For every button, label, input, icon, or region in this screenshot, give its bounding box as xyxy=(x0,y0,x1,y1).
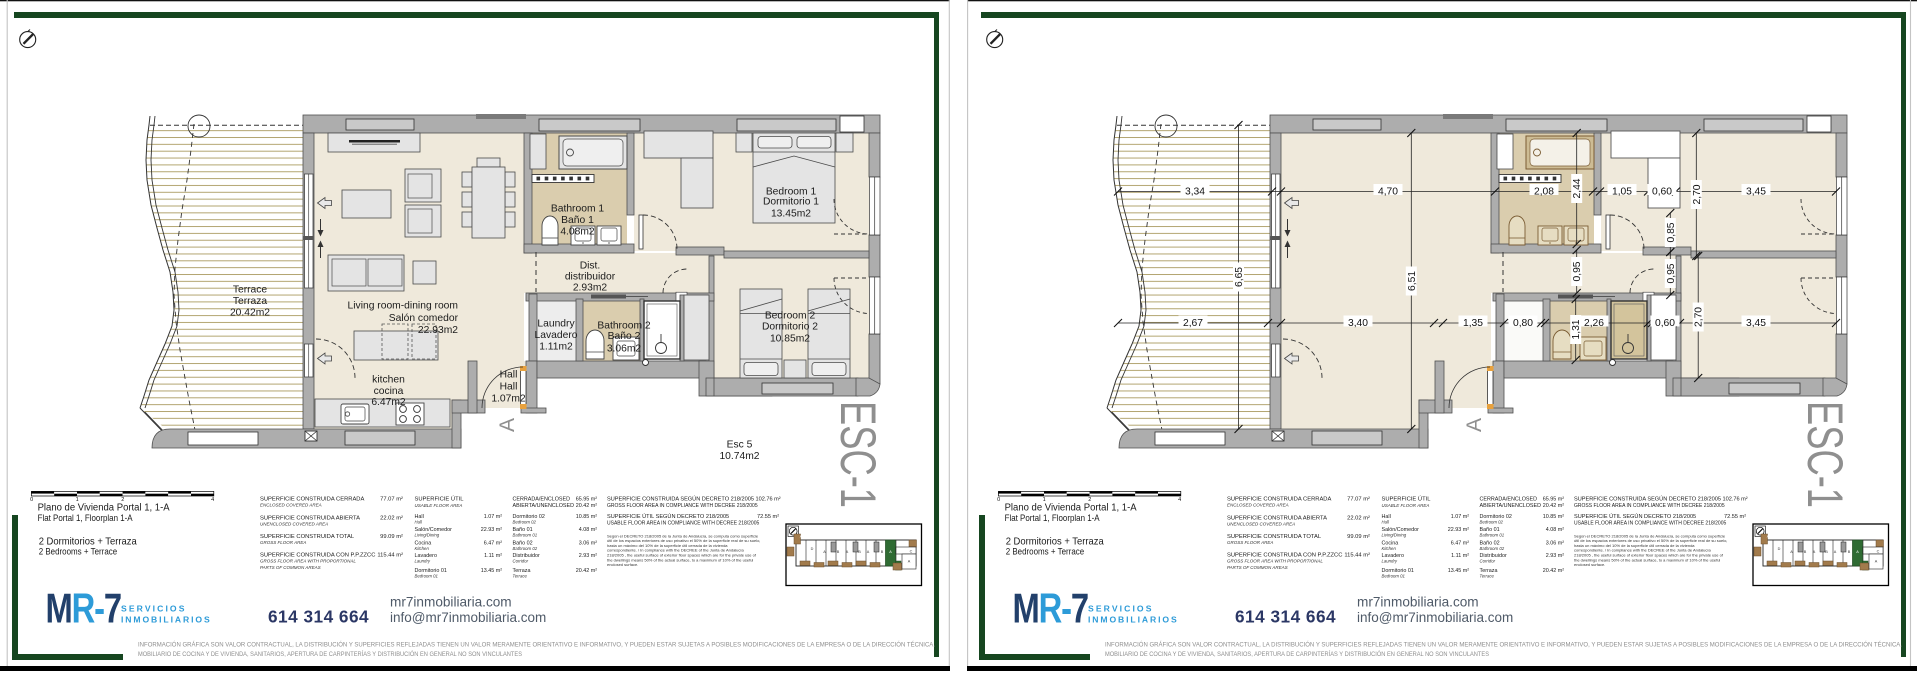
svg-text:Dist.: Dist. xyxy=(580,261,601,272)
svg-text:Bathroom 02: Bathroom 02 xyxy=(513,546,538,551)
svg-text:MOBILIARIO DE COCINA Y DE VIVI: MOBILIARIO DE COCINA Y DE VIVIENDA, SANI… xyxy=(1105,649,1490,658)
svg-text:0,95: 0,95 xyxy=(1572,261,1583,281)
svg-text:4: 4 xyxy=(211,497,214,503)
svg-text:SUPERFICIE ÚTIL SEGÚN DECRETO: SUPERFICIE ÚTIL SEGÚN DECRETO 218/2005 xyxy=(607,513,729,520)
svg-text:72.55 m²: 72.55 m² xyxy=(757,514,779,520)
svg-text:GROSS FLOOR AREA WITH PROPORTI: GROSS FLOOR AREA WITH PROPORTIONAL xyxy=(260,559,356,564)
svg-text:B: B xyxy=(1848,550,1851,554)
svg-text:1.07m2: 1.07m2 xyxy=(491,394,526,405)
svg-text:Terraza: Terraza xyxy=(233,296,268,307)
svg-text:SUPERFICIE CONSTRUIDA CERRADA: SUPERFICIE CONSTRUIDA CERRADA xyxy=(260,496,364,502)
svg-text:enclosed surface.: enclosed surface. xyxy=(607,562,638,567)
svg-text:MOBILIARIO DE COCINA Y DE VIVI: MOBILIARIO DE COCINA Y DE VIVIENDA, SANI… xyxy=(138,649,523,658)
svg-text:INFORMACIÓN GRÁFICA SON VALOR: INFORMACIÓN GRÁFICA SON VALOR CONTRACTUA… xyxy=(138,640,935,649)
svg-text:22.02 m²: 22.02 m² xyxy=(1347,515,1370,521)
svg-text:2.93 m²: 2.93 m² xyxy=(1546,553,1564,559)
svg-text:D: D xyxy=(811,547,814,551)
svg-text:6.47 m²: 6.47 m² xyxy=(484,540,502,546)
svg-text:A: A xyxy=(867,550,870,554)
svg-text:GROSS FLOOR AREA WITH PROPORTI: GROSS FLOOR AREA WITH PROPORTIONAL xyxy=(1227,559,1323,564)
svg-text:0,95: 0,95 xyxy=(1666,263,1677,283)
svg-text:Dormitorio 2: Dormitorio 2 xyxy=(762,322,818,333)
svg-text:Hall: Hall xyxy=(415,519,423,524)
svg-text:SERVICIOS: SERVICIOS xyxy=(1088,604,1154,614)
svg-text:GROSS FLOOR AREA IN COMPLIANCE: GROSS FLOOR AREA IN COMPLIANCE WITH DECR… xyxy=(1574,503,1725,509)
svg-text:B: B xyxy=(1804,550,1807,554)
svg-text:1.11 m²: 1.11 m² xyxy=(484,553,502,559)
svg-text:SUPERFICIE CONSTRUIDA TOTAL: SUPERFICIE CONSTRUIDA TOTAL xyxy=(260,534,355,540)
svg-text:22.02 m²: 22.02 m² xyxy=(380,515,403,521)
svg-text:4.08 m²: 4.08 m² xyxy=(579,527,597,533)
svg-text:USABLE FLOOR AREA IN COMPLIANC: USABLE FLOOR AREA IN COMPLIANCE WITH DEC… xyxy=(1574,520,1726,526)
svg-text:Bedroom 2: Bedroom 2 xyxy=(765,311,816,322)
svg-text:2 Bedrooms + Terrace: 2 Bedrooms + Terrace xyxy=(39,547,118,558)
svg-text:Bedroom 02: Bedroom 02 xyxy=(513,519,537,524)
svg-text:ENCLOSED COVERED AREA: ENCLOSED COVERED AREA xyxy=(1227,503,1289,508)
svg-text:SERVICIOS: SERVICIOS xyxy=(121,604,187,614)
svg-text:3.06 m²: 3.06 m² xyxy=(579,540,597,546)
svg-text:Kitchen: Kitchen xyxy=(1382,546,1397,551)
svg-text:SUPERFICIE ÚTIL: SUPERFICIE ÚTIL xyxy=(415,495,465,502)
svg-text:1,35: 1,35 xyxy=(1463,318,1483,329)
svg-text:Terrace: Terrace xyxy=(513,573,528,578)
svg-text:UNENCLOSED COVERED AREA: UNENCLOSED COVERED AREA xyxy=(1227,522,1295,527)
svg-text:77.07 m²: 77.07 m² xyxy=(1347,496,1370,502)
svg-text:SUPERFICIE ÚTIL: SUPERFICIE ÚTIL xyxy=(1382,495,1432,502)
svg-text:D: D xyxy=(1778,547,1781,551)
svg-text:4.08m2: 4.08m2 xyxy=(560,227,595,238)
svg-text:PARTS OF COMMON AREAS: PARTS OF COMMON AREAS xyxy=(1227,565,1288,570)
svg-text:SUPERFICIE CONSTRUIDA SEGÚN DE: SUPERFICIE CONSTRUIDA SEGÚN DECRETO 218/… xyxy=(1574,495,1748,502)
svg-text:0,85: 0,85 xyxy=(1666,222,1677,242)
svg-text:22.93 m²: 22.93 m² xyxy=(1448,527,1469,533)
svg-text:10.74m2: 10.74m2 xyxy=(719,451,759,462)
svg-text:99.09 m²: 99.09 m² xyxy=(380,534,403,540)
svg-text:2.93m2: 2.93m2 xyxy=(573,283,608,294)
svg-text:Living/Dining: Living/Dining xyxy=(1382,533,1407,538)
svg-text:Bedroom 01: Bedroom 01 xyxy=(1382,573,1406,578)
svg-text:info@mr7inmobiliaria.com: info@mr7inmobiliaria.com xyxy=(1357,610,1513,625)
svg-text:GROSS FLOOR AREA: GROSS FLOOR AREA xyxy=(260,540,306,545)
svg-text:Baño 1: Baño 1 xyxy=(561,215,594,226)
svg-text:Laundry: Laundry xyxy=(537,319,575,330)
svg-text:614 314 664: 614 314 664 xyxy=(1235,607,1336,627)
svg-text:INMOBILIARIOS: INMOBILIARIOS xyxy=(1088,615,1179,625)
svg-text:B: B xyxy=(837,550,840,554)
svg-text:Hall: Hall xyxy=(1382,519,1390,524)
svg-text:SUPERFICIE CONSTRUIDA CERRADA: SUPERFICIE CONSTRUIDA CERRADA xyxy=(1227,496,1331,502)
svg-text:GROSS FLOOR AREA: GROSS FLOOR AREA xyxy=(1227,540,1273,545)
svg-text:A: A xyxy=(1813,550,1816,554)
svg-text:CERRADA/ENCLOSED: CERRADA/ENCLOSED xyxy=(513,496,571,502)
svg-text:1.07 m²: 1.07 m² xyxy=(484,514,502,520)
svg-text:Hall: Hall xyxy=(500,370,518,381)
svg-text:65.95 m²: 65.95 m² xyxy=(1543,496,1564,502)
svg-text:Kitchen: Kitchen xyxy=(415,546,430,551)
svg-text:20.42 m²: 20.42 m² xyxy=(1543,568,1564,574)
svg-text:115.44 m²: 115.44 m² xyxy=(377,552,403,558)
svg-text:0,60: 0,60 xyxy=(1652,187,1672,198)
svg-text:USABLE FLOOR AREA: USABLE FLOOR AREA xyxy=(1382,503,1430,508)
svg-text:2 Bedrooms + Terrace: 2 Bedrooms + Terrace xyxy=(1006,547,1084,558)
svg-text:Bedroom 02: Bedroom 02 xyxy=(1480,519,1504,524)
svg-text:77.07 m²: 77.07 m² xyxy=(380,496,403,502)
svg-text:65.95 m²: 65.95 m² xyxy=(576,496,597,502)
svg-text:Corridor: Corridor xyxy=(1480,558,1496,563)
svg-text:Bathroom 01: Bathroom 01 xyxy=(1480,533,1505,538)
svg-text:enclosed surface.: enclosed surface. xyxy=(1574,562,1605,567)
svg-text:ESC-1: ESC-1 xyxy=(1797,401,1853,508)
svg-text:2,26: 2,26 xyxy=(1584,318,1604,329)
svg-text:Living/Dining: Living/Dining xyxy=(415,533,440,538)
svg-text:A: A xyxy=(800,535,803,539)
svg-text:6,51: 6,51 xyxy=(1407,271,1418,291)
svg-text:3,34: 3,34 xyxy=(1185,187,1205,198)
svg-text:Hall: Hall xyxy=(500,382,518,393)
svg-text:SUPERFICIE CONSTRUIDA CON P.P.: SUPERFICIE CONSTRUIDA CON P.P.ZZCC xyxy=(1227,552,1342,558)
svg-text:Bathroom 1: Bathroom 1 xyxy=(551,204,605,215)
svg-text:MR-7: MR-7 xyxy=(1013,585,1089,632)
svg-text:ABIERTA/UNENCLOSED: ABIERTA/UNENCLOSED xyxy=(1480,503,1542,509)
svg-text:6,65: 6,65 xyxy=(1234,267,1245,287)
svg-text:C: C xyxy=(1877,550,1880,554)
svg-text:A: A xyxy=(1767,535,1770,539)
svg-text:4,70: 4,70 xyxy=(1378,187,1398,198)
svg-text:GROSS FLOOR AREA IN COMPLIANCE: GROSS FLOOR AREA IN COMPLIANCE WITH DECR… xyxy=(607,503,758,509)
svg-text:0,60: 0,60 xyxy=(1655,318,1675,329)
svg-text:distribuidor: distribuidor xyxy=(565,272,616,283)
svg-text:2,44: 2,44 xyxy=(1572,178,1583,198)
svg-text:SUPERFICIE CONSTRUIDA ABIERTA: SUPERFICIE CONSTRUIDA ABIERTA xyxy=(260,515,360,521)
svg-text:cocina: cocina xyxy=(374,386,404,397)
svg-text:ENCLOSED COVERED AREA: ENCLOSED COVERED AREA xyxy=(260,503,322,508)
svg-text:A: A xyxy=(1856,550,1859,554)
svg-text:Bedroom 01: Bedroom 01 xyxy=(415,573,439,578)
svg-text:C: C xyxy=(910,550,913,554)
svg-text:3.06m2: 3.06m2 xyxy=(607,344,642,355)
svg-text:1,31: 1,31 xyxy=(1571,319,1582,339)
svg-text:SUPERFICIE CONSTRUIDA SEGÚN DE: SUPERFICIE CONSTRUIDA SEGÚN DECRETO 218/… xyxy=(607,495,781,502)
svg-text:115.44 m²: 115.44 m² xyxy=(1344,552,1370,558)
svg-text:Living room-dining room: Living room-dining room xyxy=(348,301,458,312)
svg-text:A: A xyxy=(908,560,911,564)
svg-text:10.85 m²: 10.85 m² xyxy=(576,514,597,520)
svg-text:Flat Portal 1, Floorplan 1-A: Flat Portal 1, Floorplan 1-A xyxy=(1005,513,1101,523)
svg-text:72.55 m²: 72.55 m² xyxy=(1724,514,1746,520)
svg-text:kitchen: kitchen xyxy=(372,375,405,386)
svg-text:A: A xyxy=(823,550,826,554)
svg-text:INFORMACIÓN GRÁFICA SON VALOR: INFORMACIÓN GRÁFICA SON VALOR CONTRACTUA… xyxy=(1105,640,1902,649)
svg-text:Dormitorio 1: Dormitorio 1 xyxy=(763,197,819,208)
svg-text:13.45 m²: 13.45 m² xyxy=(481,568,502,574)
svg-text:1.11 m²: 1.11 m² xyxy=(1451,553,1469,559)
svg-text:Corridor: Corridor xyxy=(513,558,529,563)
svg-text:13.45m2: 13.45m2 xyxy=(771,209,811,220)
svg-text:99.09 m²: 99.09 m² xyxy=(1347,534,1370,540)
svg-text:22.93 m²: 22.93 m² xyxy=(481,527,502,533)
svg-text:Terrace: Terrace xyxy=(1480,573,1495,578)
svg-text:B: B xyxy=(881,550,884,554)
svg-text:ESC-1: ESC-1 xyxy=(830,401,886,508)
svg-text:22.93m2: 22.93m2 xyxy=(418,325,458,336)
svg-text:ABIERTA/UNENCLOSED: ABIERTA/UNENCLOSED xyxy=(513,503,575,509)
svg-text:1.07 m²: 1.07 m² xyxy=(1451,514,1469,520)
svg-text:USABLE FLOOR AREA IN COMPLIANC: USABLE FLOOR AREA IN COMPLIANCE WITH DEC… xyxy=(607,520,759,526)
svg-text:20.42 m²: 20.42 m² xyxy=(576,503,597,509)
svg-text:Laundry: Laundry xyxy=(415,558,431,563)
svg-text:UNENCLOSED COVERED AREA: UNENCLOSED COVERED AREA xyxy=(260,522,328,527)
svg-text:2,70: 2,70 xyxy=(1694,307,1705,327)
svg-text:A: A xyxy=(1834,550,1837,554)
svg-text:0: 0 xyxy=(997,497,1000,503)
svg-text:Laundry: Laundry xyxy=(1382,558,1398,563)
svg-text:Terrace: Terrace xyxy=(233,285,268,296)
svg-text:614 314 664: 614 314 664 xyxy=(268,607,369,627)
svg-text:Lavadero: Lavadero xyxy=(535,330,578,341)
svg-text:A: A xyxy=(1463,418,1486,432)
svg-text:1,05: 1,05 xyxy=(1612,187,1632,198)
svg-text:20.42 m²: 20.42 m² xyxy=(576,568,597,574)
svg-text:2,08: 2,08 xyxy=(1534,187,1554,198)
svg-text:PARTS OF COMMON AREAS: PARTS OF COMMON AREAS xyxy=(260,565,321,570)
svg-text:4.08 m²: 4.08 m² xyxy=(1546,527,1564,533)
svg-text:mr7inmobiliaria.com: mr7inmobiliaria.com xyxy=(390,595,512,610)
svg-text:B: B xyxy=(858,550,861,554)
svg-text:B: B xyxy=(1825,550,1828,554)
svg-text:Salón comedor: Salón comedor xyxy=(389,313,459,324)
svg-text:A: A xyxy=(496,418,519,432)
svg-text:3,40: 3,40 xyxy=(1348,318,1368,329)
svg-text:2.93 m²: 2.93 m² xyxy=(579,553,597,559)
svg-text:SUPERFICIE ÚTIL SEGÚN DECRETO: SUPERFICIE ÚTIL SEGÚN DECRETO 218/2005 xyxy=(1574,513,1696,520)
svg-text:3.06 m²: 3.06 m² xyxy=(1546,540,1564,546)
svg-text:A: A xyxy=(1790,550,1793,554)
svg-text:2,67: 2,67 xyxy=(1183,318,1203,329)
svg-text:Bathroom 2: Bathroom 2 xyxy=(597,321,651,332)
svg-text:SUPERFICIE CONSTRUIDA ABIERTA: SUPERFICIE CONSTRUIDA ABIERTA xyxy=(1227,515,1327,521)
svg-text:Bathroom 01: Bathroom 01 xyxy=(513,533,538,538)
svg-text:CERRADA/ENCLOSED: CERRADA/ENCLOSED xyxy=(1480,496,1538,502)
svg-text:Baño 2: Baño 2 xyxy=(608,331,641,342)
svg-text:INMOBILIARIOS: INMOBILIARIOS xyxy=(121,615,212,625)
svg-text:0: 0 xyxy=(30,497,33,503)
svg-text:13.45 m²: 13.45 m² xyxy=(1448,568,1469,574)
svg-text:mr7inmobiliaria.com: mr7inmobiliaria.com xyxy=(1357,595,1479,610)
svg-text:20.42m2: 20.42m2 xyxy=(230,308,270,319)
svg-text:Bathroom 02: Bathroom 02 xyxy=(1480,546,1505,551)
svg-text:6.47 m²: 6.47 m² xyxy=(1451,540,1469,546)
svg-text:USABLE FLOOR AREA: USABLE FLOOR AREA xyxy=(415,503,463,508)
svg-text:SUPERFICIE CONSTRUIDA CON P.P.: SUPERFICIE CONSTRUIDA CON P.P.ZZCC xyxy=(260,552,375,558)
svg-text:4: 4 xyxy=(1178,497,1181,503)
svg-text:3,45: 3,45 xyxy=(1746,187,1766,198)
svg-text:A: A xyxy=(1875,560,1878,564)
svg-text:MR-7: MR-7 xyxy=(46,585,122,632)
svg-text:10.85m2: 10.85m2 xyxy=(770,334,810,345)
svg-text:10.85 m²: 10.85 m² xyxy=(1543,514,1564,520)
svg-text:6.47m2: 6.47m2 xyxy=(371,397,406,408)
svg-text:info@mr7inmobiliaria.com: info@mr7inmobiliaria.com xyxy=(390,610,546,625)
svg-text:3,45: 3,45 xyxy=(1746,318,1766,329)
svg-text:Flat Portal 1, Floorplan 1-A: Flat Portal 1, Floorplan 1-A xyxy=(38,513,134,523)
svg-text:A: A xyxy=(846,550,849,554)
svg-text:0,80: 0,80 xyxy=(1513,318,1533,329)
svg-text:1.11m2: 1.11m2 xyxy=(539,342,573,353)
svg-text:SUPERFICIE CONSTRUIDA TOTAL: SUPERFICIE CONSTRUIDA TOTAL xyxy=(1227,534,1322,540)
svg-text:2,70: 2,70 xyxy=(1692,184,1703,204)
svg-text:20.42 m²: 20.42 m² xyxy=(1543,503,1564,509)
svg-text:A: A xyxy=(889,550,892,554)
svg-text:Esc 5: Esc 5 xyxy=(727,440,753,451)
